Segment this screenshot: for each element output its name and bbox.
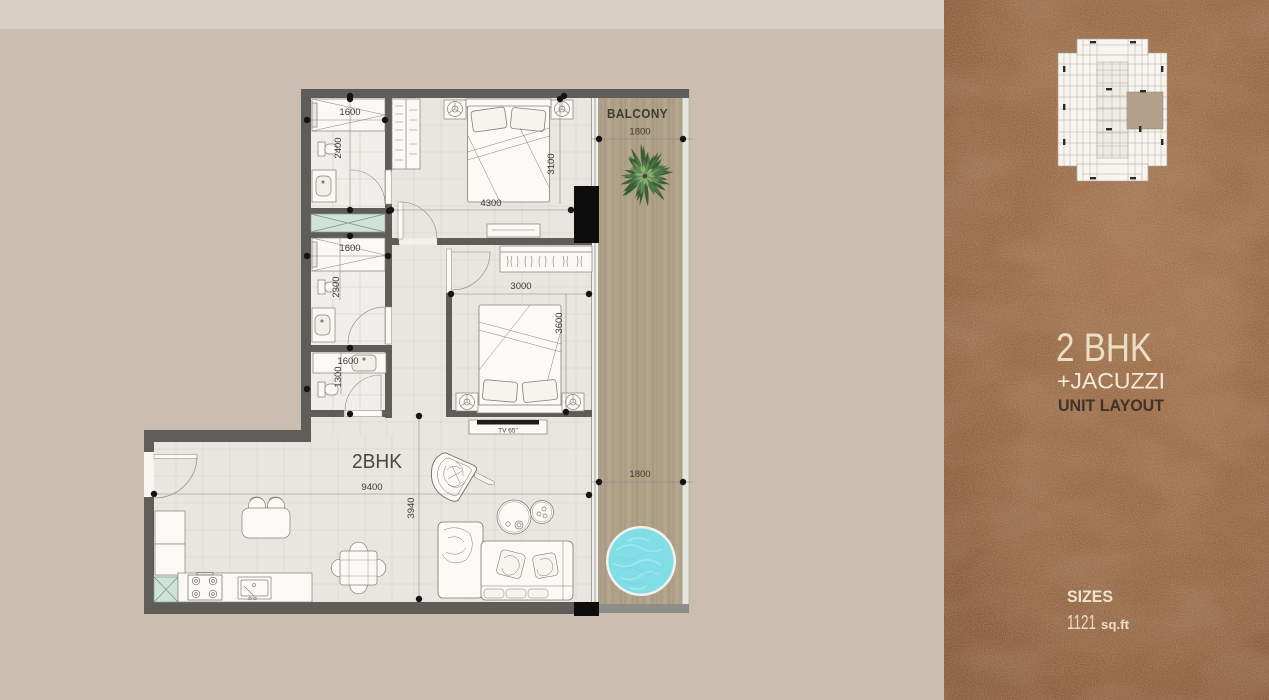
svg-text:+JACUZZI: +JACUZZI <box>1057 369 1165 394</box>
svg-text:9400: 9400 <box>361 482 382 493</box>
svg-text:2300: 2300 <box>331 276 342 297</box>
svg-text:3600: 3600 <box>554 312 565 333</box>
svg-text:1600: 1600 <box>339 243 360 254</box>
svg-text:2400: 2400 <box>333 137 344 158</box>
svg-text:3100: 3100 <box>546 153 557 174</box>
svg-text:1800: 1800 <box>629 127 650 138</box>
svg-text:1121: 1121 <box>1067 611 1096 634</box>
svg-text:1600: 1600 <box>337 356 358 367</box>
svg-text:SIZES: SIZES <box>1067 588 1113 606</box>
svg-text:sq.ft: sq.ft <box>1101 618 1130 632</box>
svg-text:UNIT LAYOUT: UNIT LAYOUT <box>1058 397 1164 415</box>
svg-text:3940: 3940 <box>406 497 417 518</box>
svg-text:1800: 1800 <box>629 469 650 480</box>
svg-text:3000: 3000 <box>510 281 531 292</box>
svg-text:1600: 1600 <box>339 107 360 118</box>
svg-text:TV 65": TV 65" <box>498 428 518 435</box>
svg-text:4300: 4300 <box>480 198 501 209</box>
svg-text:1300: 1300 <box>333 366 344 387</box>
svg-text:2 BHK: 2 BHK <box>1056 326 1152 370</box>
svg-text:BALCONY: BALCONY <box>607 106 668 121</box>
svg-text:2BHK: 2BHK <box>352 451 403 473</box>
